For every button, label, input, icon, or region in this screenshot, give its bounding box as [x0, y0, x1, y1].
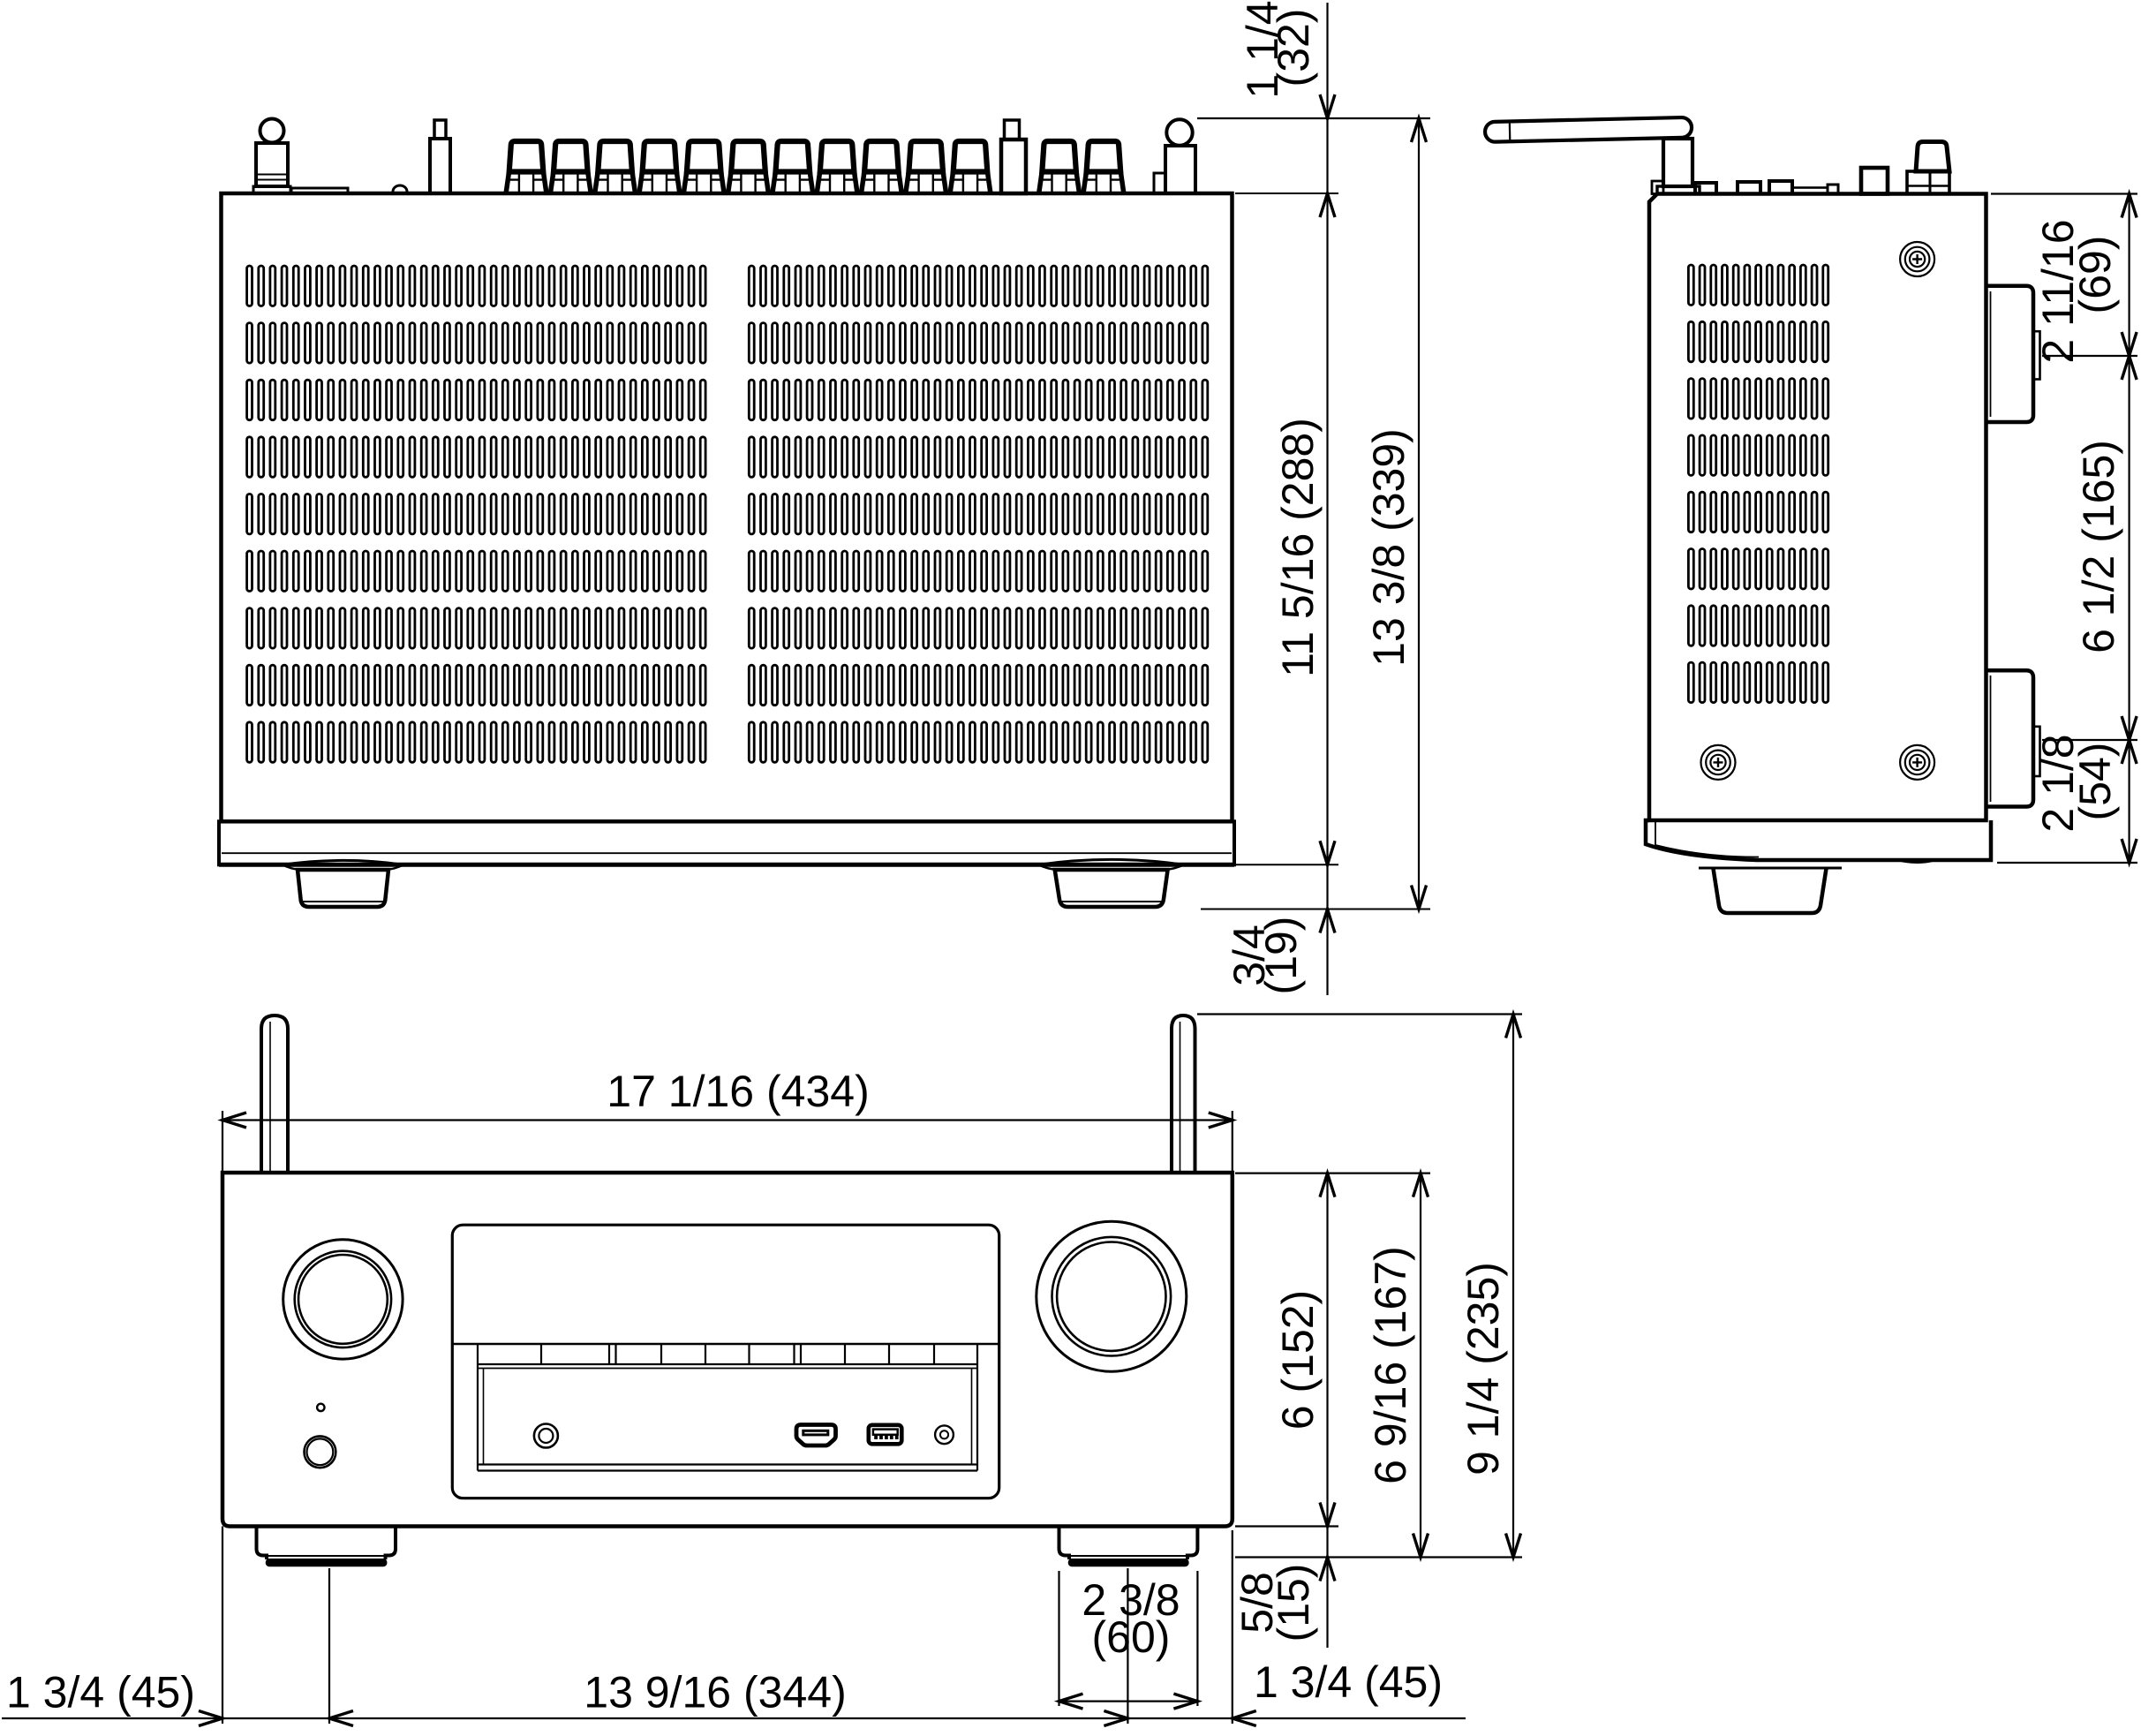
svg-text:6 1/2 (165): 6 1/2 (165)	[2074, 440, 2123, 653]
svg-text:1 3/4 (45): 1 3/4 (45)	[6, 1668, 195, 1717]
svg-text:(15): (15)	[1269, 1564, 1318, 1642]
svg-text:(32): (32)	[1269, 9, 1318, 87]
svg-text:6 (152): 6 (152)	[1273, 1290, 1323, 1430]
svg-text:(19): (19)	[1256, 917, 1306, 995]
svg-text:13 9/16 (344): 13 9/16 (344)	[584, 1668, 846, 1717]
svg-text:1 3/4 (45): 1 3/4 (45)	[1254, 1657, 1443, 1707]
svg-text:6 9/16 (167): 6 9/16 (167)	[1366, 1246, 1415, 1484]
svg-text:9 1/4 (235): 9 1/4 (235)	[1459, 1262, 1508, 1476]
svg-text:(60): (60)	[1092, 1612, 1171, 1662]
svg-text:17 1/16 (434): 17 1/16 (434)	[607, 1067, 869, 1116]
svg-text:11 5/16 (288): 11 5/16 (288)	[1273, 418, 1323, 677]
svg-text:13 3/8 (339): 13 3/8 (339)	[1364, 428, 1414, 667]
svg-text:(54): (54)	[2070, 743, 2120, 821]
svg-text:(69): (69)	[2070, 236, 2120, 314]
